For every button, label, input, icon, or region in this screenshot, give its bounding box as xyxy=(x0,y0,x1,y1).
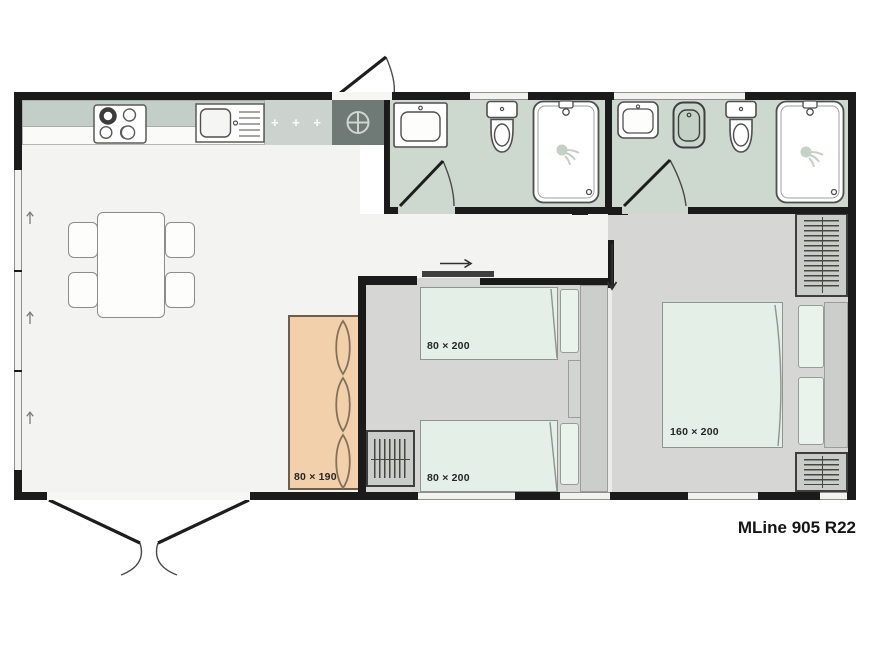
wall-bathrooms-divider xyxy=(605,98,612,210)
wardrobe-master-top xyxy=(795,213,848,297)
clothes-rail-icon xyxy=(374,439,407,478)
sofa-cushions-icon xyxy=(327,318,359,490)
washbasin2-icon xyxy=(617,101,659,139)
wall-bathroom1-left xyxy=(384,98,390,210)
window-opening-arrow xyxy=(25,410,35,426)
pillow xyxy=(560,289,579,353)
dining-chair xyxy=(68,222,98,258)
model-title: MLine 905 R22 xyxy=(656,518,856,538)
headboard-unit xyxy=(580,285,608,492)
headboard-unit xyxy=(824,302,848,448)
floorplan-canvas: + + + 80 × 190 xyxy=(0,0,870,650)
window-opening-arrow xyxy=(25,210,35,226)
tech-cabinet-icon xyxy=(332,100,384,145)
wall-bedroom2-left xyxy=(358,278,366,492)
bedroom2-door-opening xyxy=(417,278,480,285)
wall-bedroom2-top-a xyxy=(358,276,417,285)
wall-bathroom2-bottom-b xyxy=(688,207,848,214)
bed-dimension-label: 160 × 200 xyxy=(670,426,719,438)
patio-double-door xyxy=(46,498,252,578)
tech-cabinet xyxy=(332,100,384,145)
bed-dimension-label: 80 × 200 xyxy=(427,472,470,484)
sliding-door-arrow xyxy=(438,257,478,270)
window-bottom-4 xyxy=(820,492,847,500)
pillow xyxy=(798,377,824,445)
entrance-door xyxy=(334,44,398,96)
wall-right xyxy=(848,92,856,500)
window-opening-arrow xyxy=(25,310,35,326)
toilet1-icon xyxy=(483,100,521,158)
cooktop-icon xyxy=(93,104,147,144)
hallway-floor xyxy=(360,214,612,278)
dining-chair xyxy=(165,272,195,308)
wardrobe-bedroom2 xyxy=(366,430,415,487)
window-left-2 xyxy=(14,272,22,370)
pillow xyxy=(798,305,824,368)
shower1-icon xyxy=(532,100,600,204)
bathroom1-door xyxy=(398,148,456,208)
sofa: 80 × 190 xyxy=(288,315,360,490)
dining-chair xyxy=(68,272,98,308)
floorplan: + + + 80 × 190 xyxy=(14,92,856,500)
door-threshold xyxy=(572,207,588,215)
patio-opening xyxy=(47,492,250,500)
bed-double: 160 × 200 xyxy=(662,302,783,448)
bed-single-bottom: 80 × 200 xyxy=(420,420,558,492)
window-left-3 xyxy=(14,372,22,470)
bathroom1-door-opening xyxy=(398,207,455,214)
window-top-2 xyxy=(614,92,745,100)
window-left-1 xyxy=(14,170,22,270)
bedside-shelf xyxy=(568,360,581,418)
dining-table xyxy=(97,212,165,318)
window-bottom-1 xyxy=(418,492,515,500)
bidet-icon xyxy=(672,101,706,149)
sliding-door-bedroom2 xyxy=(422,271,494,277)
sliding-door-master xyxy=(602,242,622,302)
clothes-rail-icon xyxy=(804,459,839,485)
dining-chair xyxy=(165,222,195,258)
pillow xyxy=(560,423,579,485)
clothes-rail-icon xyxy=(804,220,839,290)
window-bottom-2 xyxy=(560,492,610,500)
kitchen-sink-icon xyxy=(195,103,265,143)
sofa-dimension-label: 80 × 190 xyxy=(294,471,337,483)
toilet2-icon xyxy=(722,100,760,158)
wall-bathroom1-bottom-a xyxy=(384,207,398,214)
bathroom2-door xyxy=(622,146,688,208)
shower2-icon xyxy=(775,100,845,204)
entrance-opening xyxy=(332,92,392,100)
wall-bedroom2-top-b xyxy=(480,278,612,285)
bed-dimension-label: 80 × 200 xyxy=(427,340,470,352)
bathroom2-door-opening xyxy=(622,207,688,214)
bed-single-top: 80 × 200 xyxy=(420,287,558,360)
kitchen-cabinet: + + + xyxy=(265,100,332,145)
washbasin1-icon xyxy=(393,102,448,148)
window-top-1 xyxy=(470,92,528,100)
wardrobe-master-bottom xyxy=(795,452,848,492)
window-bottom-3 xyxy=(688,492,758,500)
